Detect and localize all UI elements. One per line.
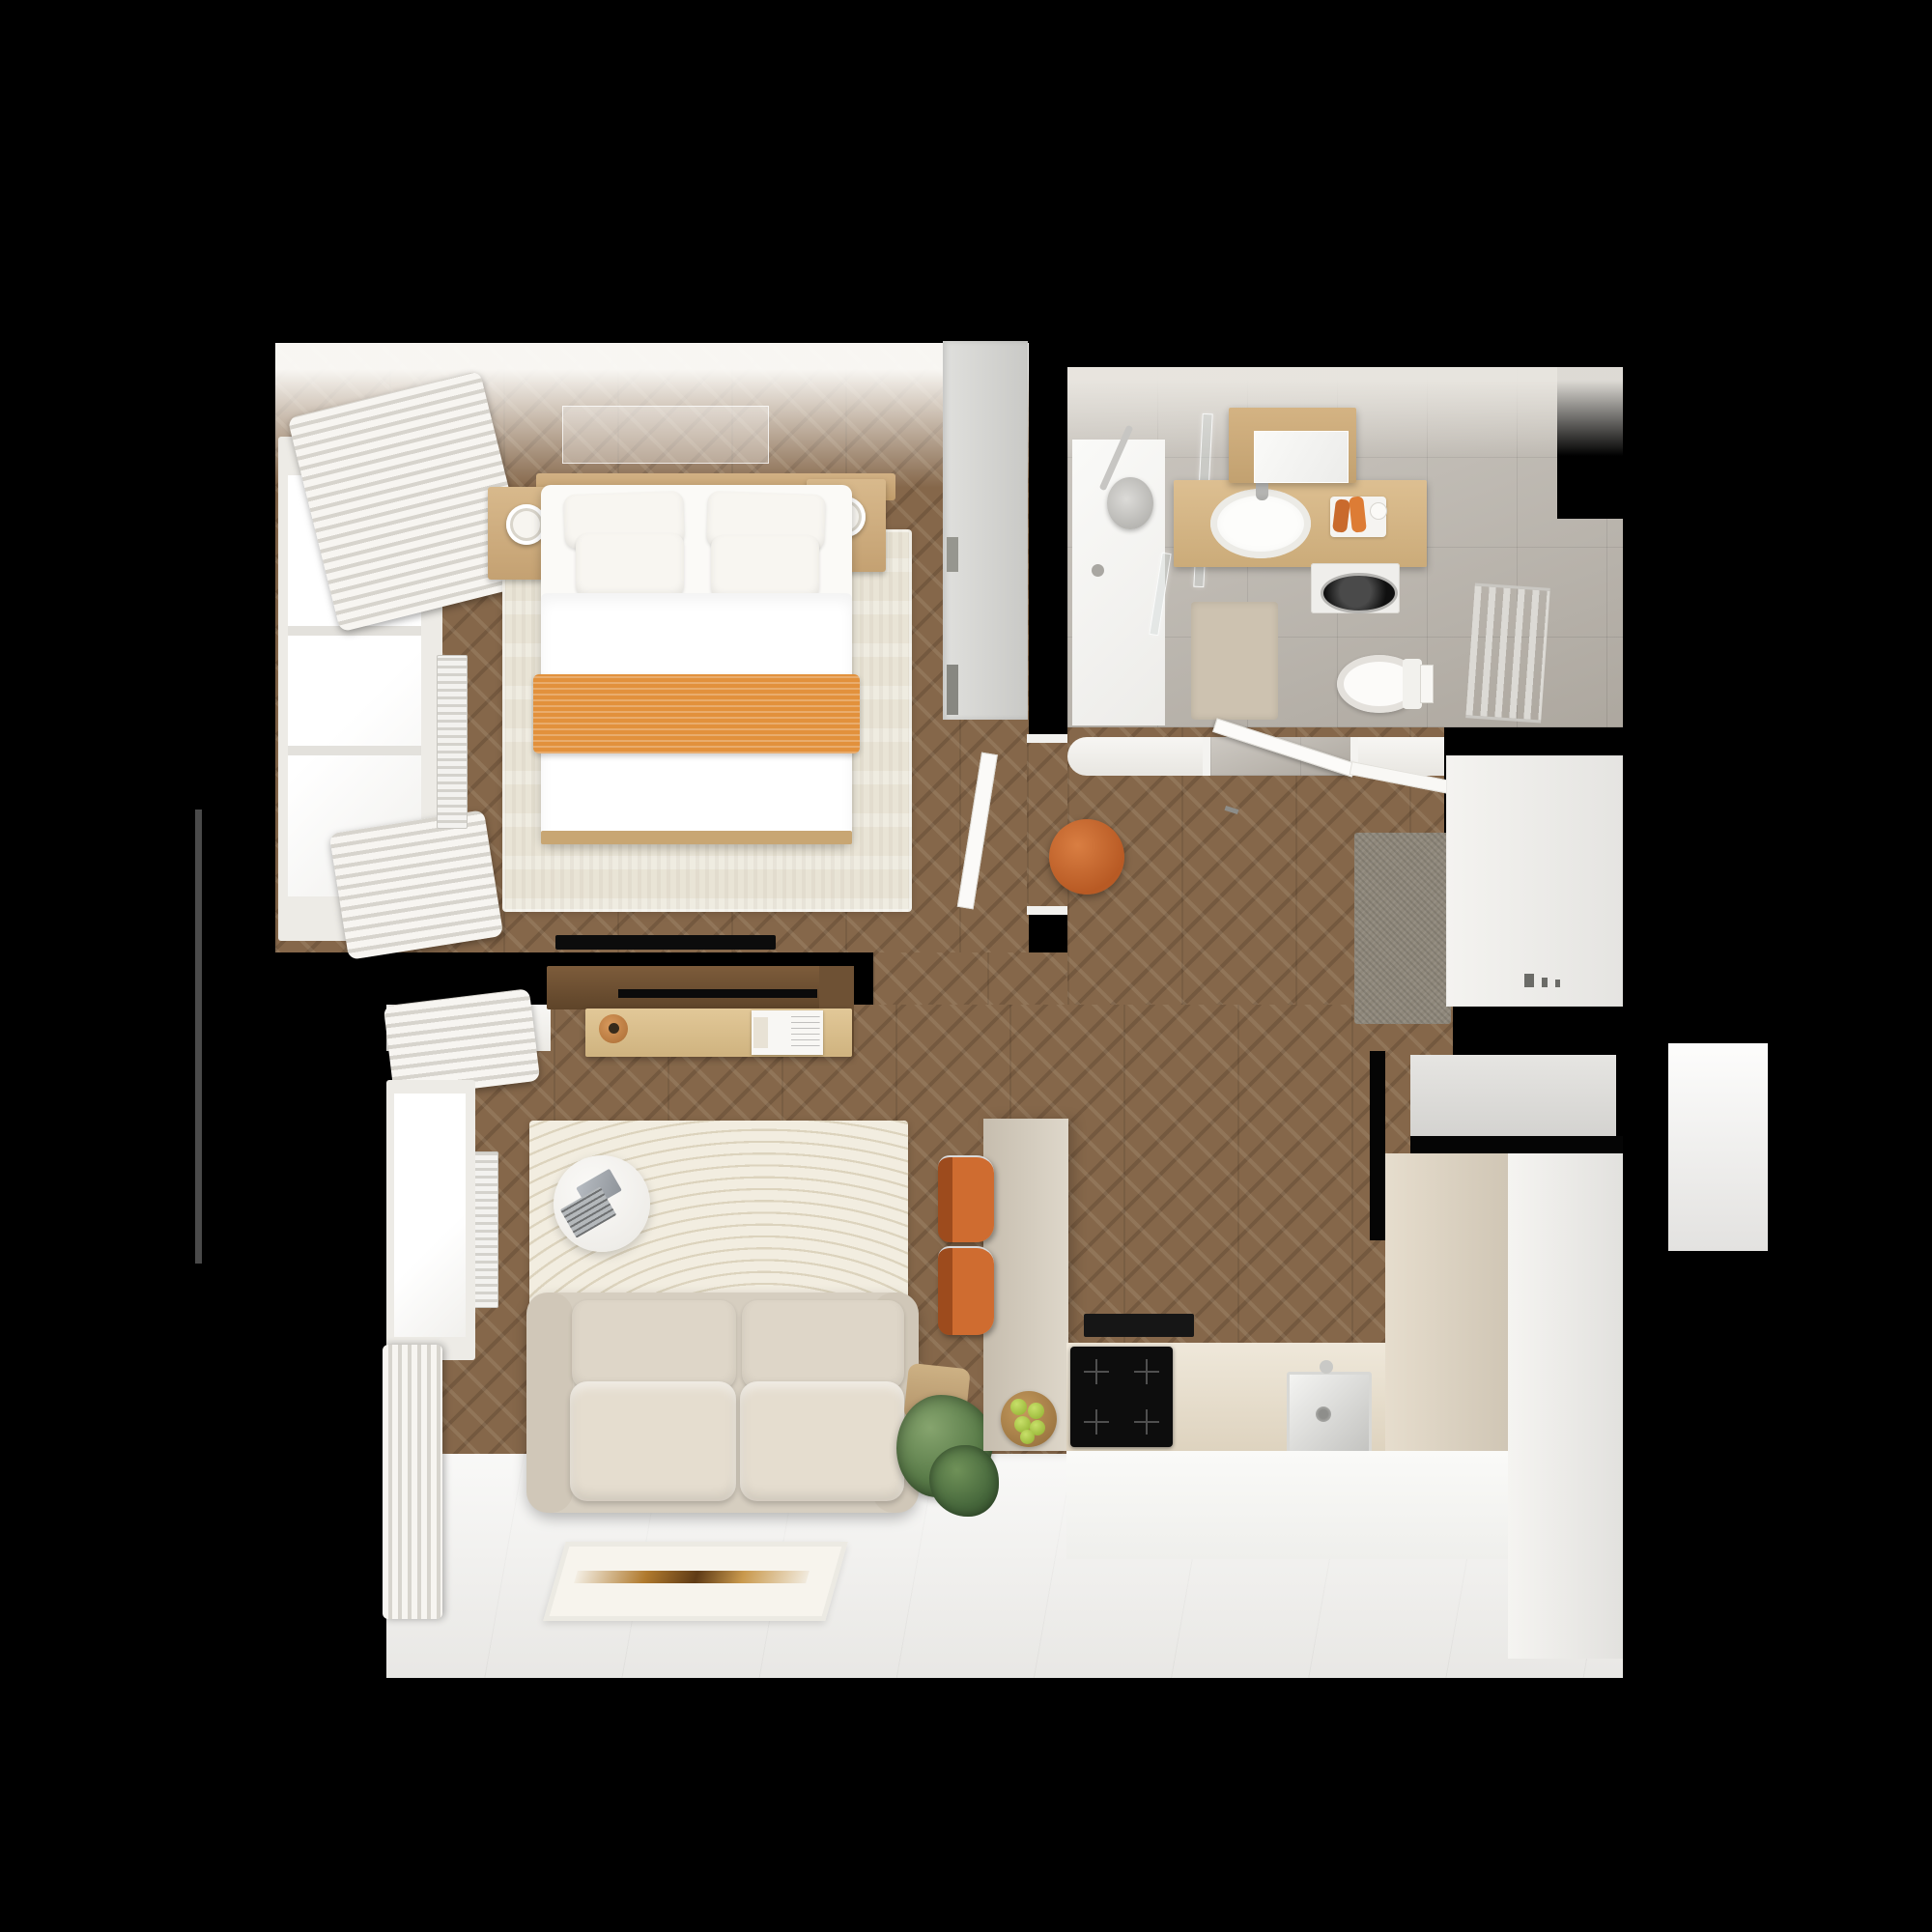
bed-runner-orange	[533, 674, 860, 753]
apple-5	[1020, 1430, 1035, 1444]
media-shelf-walnut	[547, 966, 854, 1009]
amenity-cup	[1370, 502, 1387, 520]
bedroom-tv	[555, 935, 776, 950]
kitchen-east-wall	[1385, 1153, 1508, 1451]
wall-stub-horizontal	[1410, 1136, 1623, 1153]
floor-artwork-streak	[574, 1571, 810, 1583]
kitchen-tall-cabinets	[1508, 1153, 1623, 1659]
sofa-back-cushion-left	[572, 1300, 736, 1389]
bedroom-wardrobe	[943, 341, 1028, 720]
bar-stool-2	[938, 1246, 994, 1335]
sofa-armrest-left	[526, 1293, 573, 1513]
bedroom-ceiling-lamp	[562, 406, 769, 464]
kitchen-counter-front	[1066, 1451, 1508, 1559]
exterior-block	[1668, 1043, 1768, 1251]
closet-handle-3	[1555, 980, 1560, 987]
sofa-back-cushion-right	[742, 1300, 904, 1389]
desk-vase-mouth	[609, 1023, 619, 1034]
desk-magazine	[752, 1010, 823, 1055]
wall-stub-vertical	[1370, 1051, 1385, 1240]
balcony-rail	[195, 810, 202, 1264]
kitchen-hob	[1070, 1347, 1173, 1447]
hall-bench-cabinet	[1410, 1055, 1616, 1136]
sofa-seat-cushion-right	[740, 1381, 904, 1501]
bedroom-window-mullion-2	[288, 746, 421, 755]
bedroom-radiator	[437, 655, 468, 829]
closet-handle-1	[1524, 974, 1534, 987]
bed-pillow-front-right	[711, 535, 819, 599]
bath-mat	[1191, 602, 1278, 720]
bathroom-door-frame-left	[1203, 737, 1210, 776]
kitchen-sink-drain	[1316, 1406, 1331, 1422]
floor-plan-canvas	[0, 0, 1932, 1932]
wardrobe-handle-bottom	[947, 665, 958, 715]
kitchen-hood	[1084, 1314, 1194, 1337]
sofa-seat-cushion-left	[570, 1381, 736, 1501]
toilet-cistern	[1403, 659, 1422, 709]
entry-doormat	[1354, 833, 1451, 1024]
bed-pillow-front-left	[576, 533, 684, 597]
shower-drain	[1092, 564, 1104, 577]
shower-head	[1107, 477, 1153, 529]
apple-1	[1010, 1399, 1027, 1415]
closet-handle-2	[1542, 978, 1548, 987]
toilet-flush-plate	[1420, 665, 1434, 703]
hall-pouf	[1049, 819, 1124, 895]
apple-2	[1028, 1403, 1044, 1419]
living-tv	[618, 989, 817, 998]
living-window-glass	[394, 1094, 466, 1337]
wardrobe-handle-top	[947, 537, 958, 572]
bedroom-door-frame-top	[1027, 734, 1067, 743]
towel-radiator	[1465, 582, 1550, 723]
living-side-curtain	[383, 1345, 442, 1619]
bedroom-door-frame-bottom	[1027, 906, 1067, 915]
kitchen-faucet	[1320, 1360, 1333, 1374]
mirror-cabinet-glass	[1254, 431, 1349, 483]
washing-machine-door	[1321, 573, 1398, 613]
page: { "meta": { "description": "Top-down 3D …	[0, 0, 1932, 1932]
bar-stool-1	[938, 1155, 994, 1242]
bed-foot-frame	[541, 831, 852, 844]
bedroom-curtain-bottom	[329, 810, 504, 960]
entry-closet	[1446, 755, 1623, 1007]
